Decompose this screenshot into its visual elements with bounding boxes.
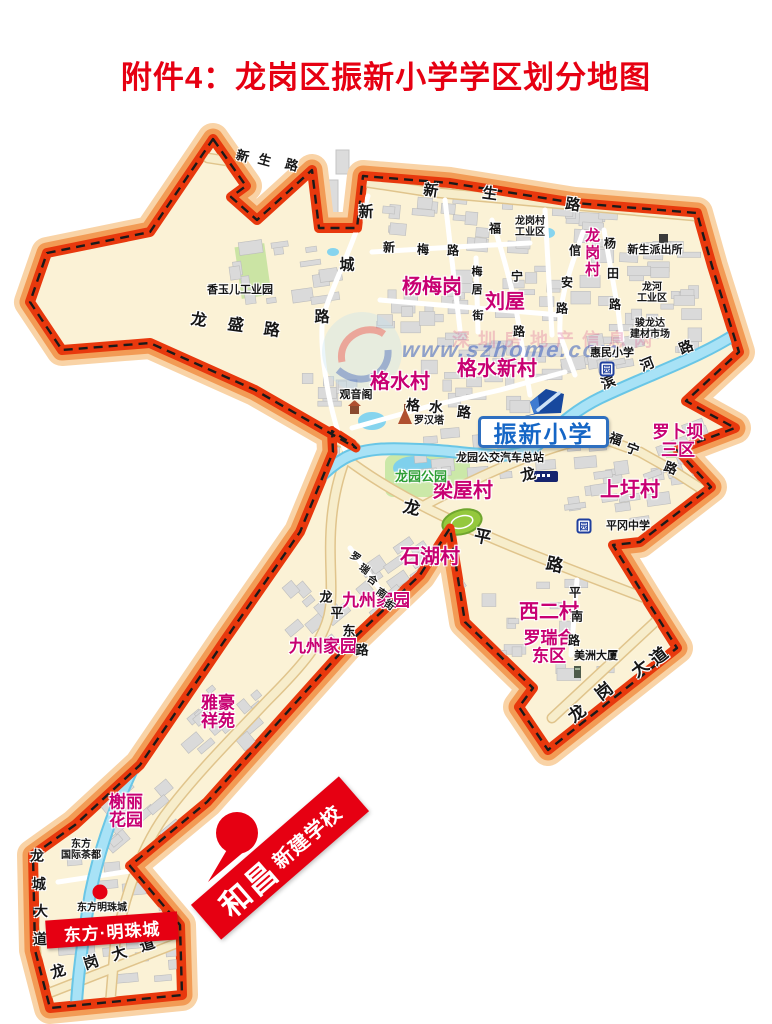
building — [419, 312, 435, 326]
building — [241, 276, 250, 288]
watermark-url: www.szhome.com — [401, 337, 622, 363]
building — [485, 375, 503, 382]
building — [537, 582, 550, 589]
building — [383, 206, 396, 214]
building — [519, 290, 535, 295]
building — [288, 437, 299, 447]
building — [67, 858, 82, 865]
building — [229, 266, 241, 281]
building — [682, 309, 702, 320]
road-minor — [476, 258, 478, 332]
building — [661, 304, 674, 309]
building — [525, 273, 536, 284]
building — [475, 227, 489, 238]
building — [688, 328, 702, 342]
land-patch — [327, 248, 339, 256]
district-map-canvas — [0, 0, 772, 1024]
building — [619, 253, 638, 263]
building — [582, 222, 603, 230]
new-school-marker-circle — [216, 812, 258, 854]
building — [251, 453, 269, 460]
building — [388, 290, 396, 300]
building — [381, 637, 401, 657]
building — [291, 288, 313, 304]
building — [401, 322, 421, 333]
building — [443, 380, 452, 391]
building — [574, 456, 597, 469]
building — [508, 619, 519, 624]
building — [535, 266, 547, 272]
building — [653, 241, 671, 254]
building — [465, 212, 478, 226]
school-callout-box: 振新小学 — [478, 416, 609, 448]
watermark-logo — [322, 312, 402, 392]
building — [614, 460, 630, 475]
building — [283, 464, 297, 473]
building — [599, 296, 615, 305]
police-station-icon — [659, 234, 668, 243]
building — [417, 197, 433, 210]
building — [440, 427, 459, 438]
estate-name: 东方·明珠城 — [63, 914, 161, 946]
building — [632, 309, 642, 320]
building — [647, 314, 658, 321]
building — [510, 400, 530, 412]
building — [390, 223, 407, 236]
building — [550, 602, 564, 608]
building — [154, 974, 171, 981]
building — [674, 296, 695, 306]
building — [279, 436, 292, 445]
building — [302, 373, 313, 383]
building — [512, 647, 522, 657]
building — [402, 307, 413, 317]
building — [571, 291, 591, 304]
bus-station-icon — [534, 471, 558, 482]
building — [423, 436, 437, 444]
building — [580, 275, 600, 287]
building — [305, 246, 317, 253]
building — [482, 594, 496, 607]
school-name: 振新小学 — [494, 415, 594, 449]
building — [590, 483, 611, 496]
building — [627, 266, 650, 275]
building — [266, 297, 276, 303]
tower-building-icon — [574, 666, 581, 678]
building — [244, 289, 256, 304]
building — [651, 267, 669, 277]
building — [467, 377, 482, 387]
estate-dot-marker — [93, 885, 108, 900]
building — [542, 632, 555, 642]
building — [615, 502, 631, 512]
building — [513, 280, 525, 288]
building — [253, 457, 272, 469]
building — [241, 444, 253, 454]
building — [444, 372, 465, 378]
building — [441, 466, 451, 475]
building — [535, 459, 555, 470]
map-page: 附件4：龙岗区振新小学学区划分地图 — [0, 0, 772, 1024]
